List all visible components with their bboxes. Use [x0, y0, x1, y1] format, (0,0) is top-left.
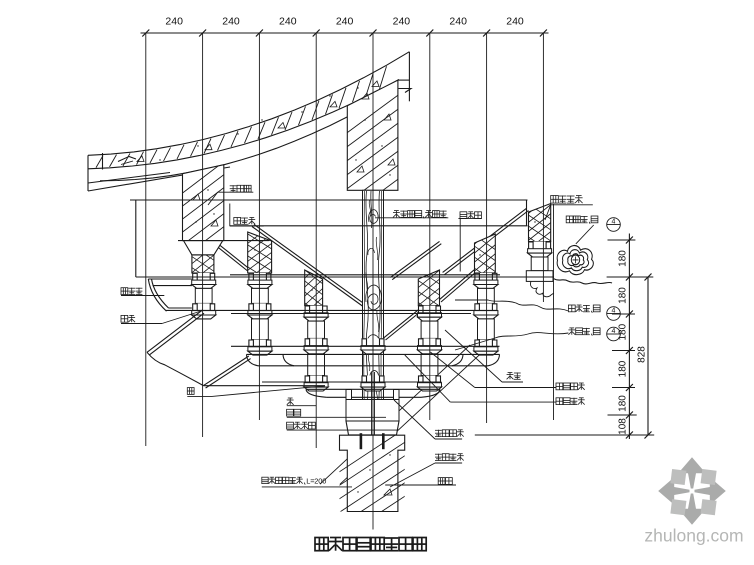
- svg-text:240: 240: [506, 16, 524, 28]
- svg-text:240: 240: [449, 16, 467, 28]
- svg-text:4: 4: [612, 219, 616, 226]
- svg-text:240: 240: [336, 16, 354, 28]
- svg-text:180: 180: [618, 287, 629, 304]
- svg-text:240: 240: [165, 16, 183, 28]
- svg-text:4: 4: [612, 308, 616, 315]
- svg-text:108: 108: [618, 418, 629, 435]
- svg-text:180: 180: [618, 250, 629, 267]
- svg-text:0: 0: [322, 477, 326, 486]
- svg-text:zhulong.com: zhulong.com: [644, 526, 743, 546]
- svg-text:828: 828: [637, 346, 648, 363]
- svg-text:4: 4: [612, 328, 616, 335]
- svg-text:180: 180: [618, 360, 629, 377]
- svg-text:240: 240: [393, 16, 411, 28]
- svg-text:240: 240: [222, 16, 240, 28]
- svg-text:240: 240: [279, 16, 297, 28]
- svg-text:180: 180: [618, 395, 629, 412]
